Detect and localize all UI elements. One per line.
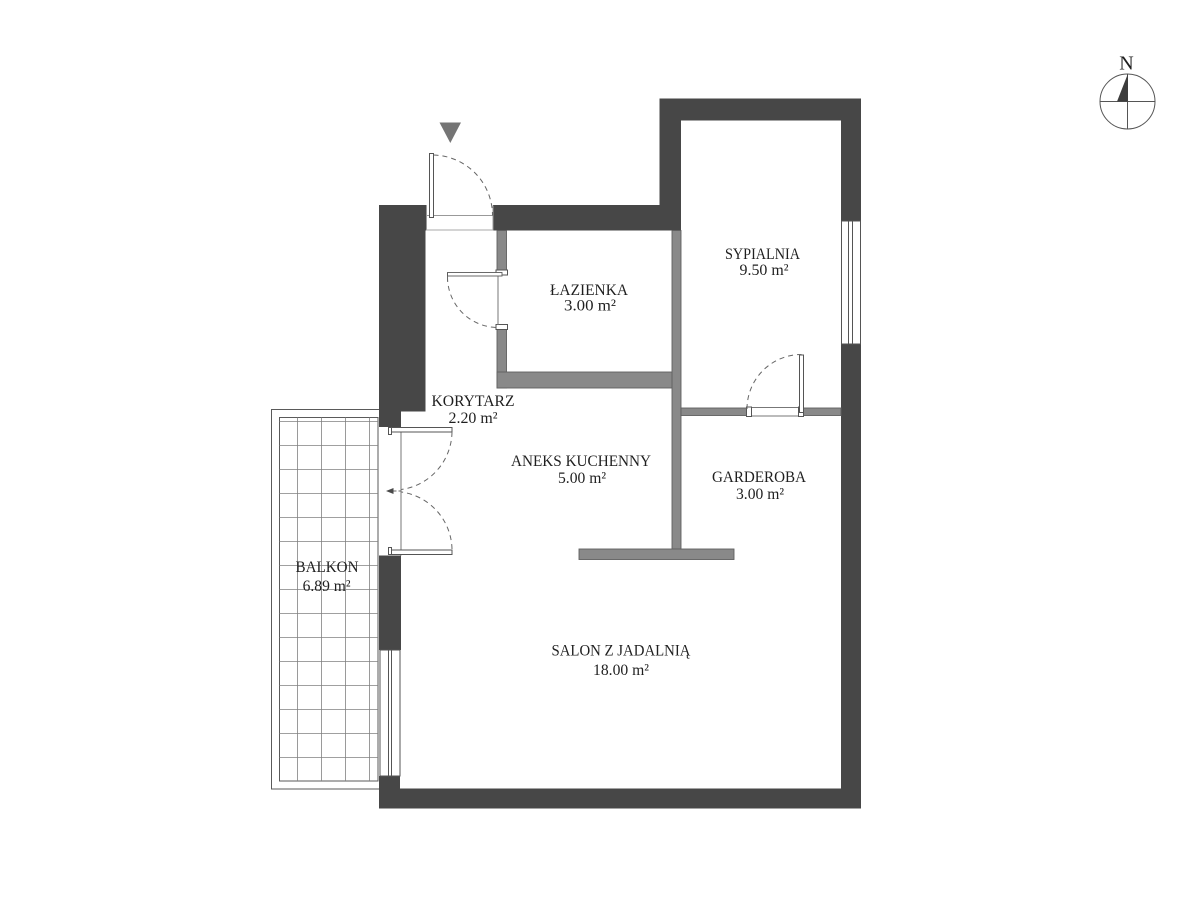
- svg-text:SYPIALNIA: SYPIALNIA: [725, 246, 800, 263]
- svg-text:3.00 m²: 3.00 m²: [736, 486, 784, 503]
- svg-text:18.00 m²: 18.00 m²: [593, 662, 649, 679]
- svg-text:ŁAZIENKA: ŁAZIENKA: [550, 282, 628, 299]
- svg-text:3.00 m²: 3.00 m²: [564, 298, 616, 315]
- svg-text:2.20 m²: 2.20 m²: [449, 410, 498, 427]
- svg-text:KORYTARZ: KORYTARZ: [432, 393, 515, 410]
- svg-text:ANEKS KUCHENNY: ANEKS KUCHENNY: [511, 453, 651, 470]
- svg-text:5.00 m²: 5.00 m²: [558, 470, 606, 487]
- svg-text:9.50 m²: 9.50 m²: [740, 262, 789, 279]
- svg-text:N: N: [1119, 53, 1133, 75]
- svg-text:BALKON: BALKON: [296, 559, 359, 576]
- svg-text:GARDEROBA: GARDEROBA: [712, 469, 806, 486]
- svg-text:6.89 m²: 6.89 m²: [303, 578, 351, 595]
- svg-text:SALON Z JADALNIĄ: SALON Z JADALNIĄ: [552, 643, 691, 660]
